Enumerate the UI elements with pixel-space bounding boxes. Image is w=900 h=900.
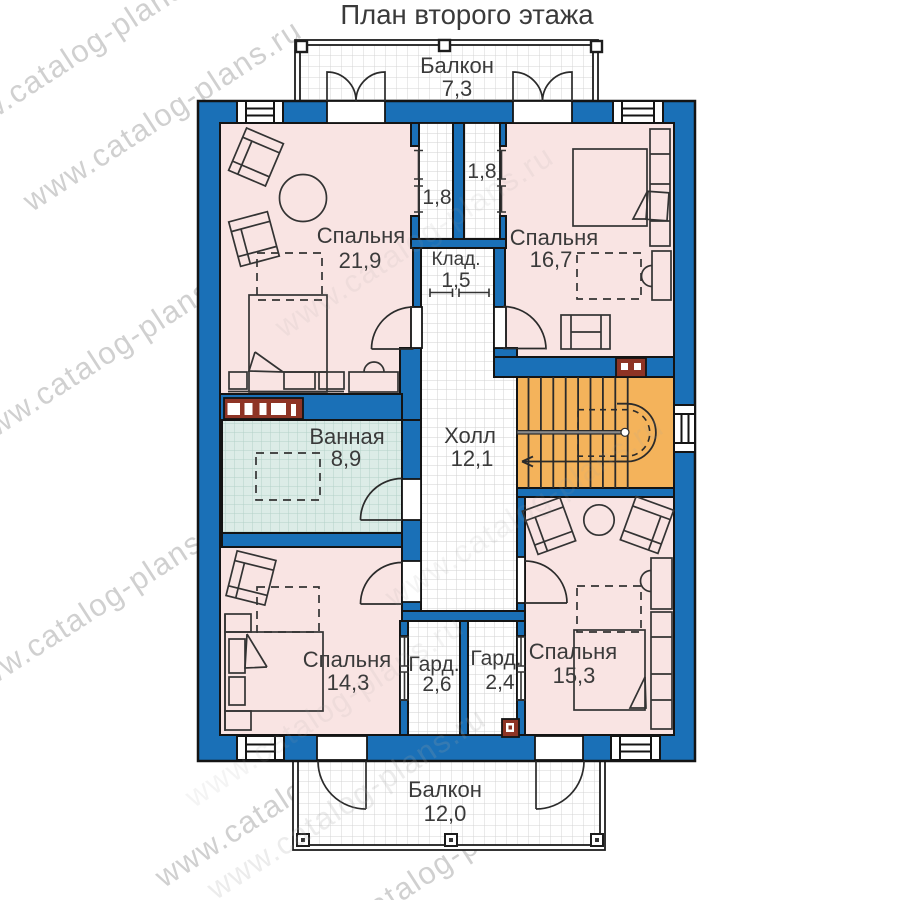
svg-text:7,3: 7,3	[442, 76, 473, 101]
svg-text:1,5: 1,5	[441, 269, 470, 292]
svg-text:12,0: 12,0	[424, 801, 467, 826]
svg-text:2,6: 2,6	[422, 673, 451, 696]
svg-text:8,9: 8,9	[331, 446, 362, 471]
svg-text:Спальня: Спальня	[529, 639, 617, 664]
svg-text:2,4: 2,4	[485, 671, 515, 694]
svg-text:Балкон: Балкон	[408, 777, 482, 802]
svg-text:Балкон: Балкон	[420, 53, 494, 78]
svg-text:12,1: 12,1	[451, 446, 494, 471]
svg-text:Гард.: Гард.	[470, 647, 521, 670]
svg-text:15,3: 15,3	[553, 663, 596, 688]
svg-text:Холл: Холл	[444, 423, 496, 448]
svg-text:План второго этажа: План второго этажа	[340, 0, 594, 30]
svg-text:Клад.: Клад.	[431, 249, 480, 270]
svg-text:16,7: 16,7	[530, 247, 573, 272]
